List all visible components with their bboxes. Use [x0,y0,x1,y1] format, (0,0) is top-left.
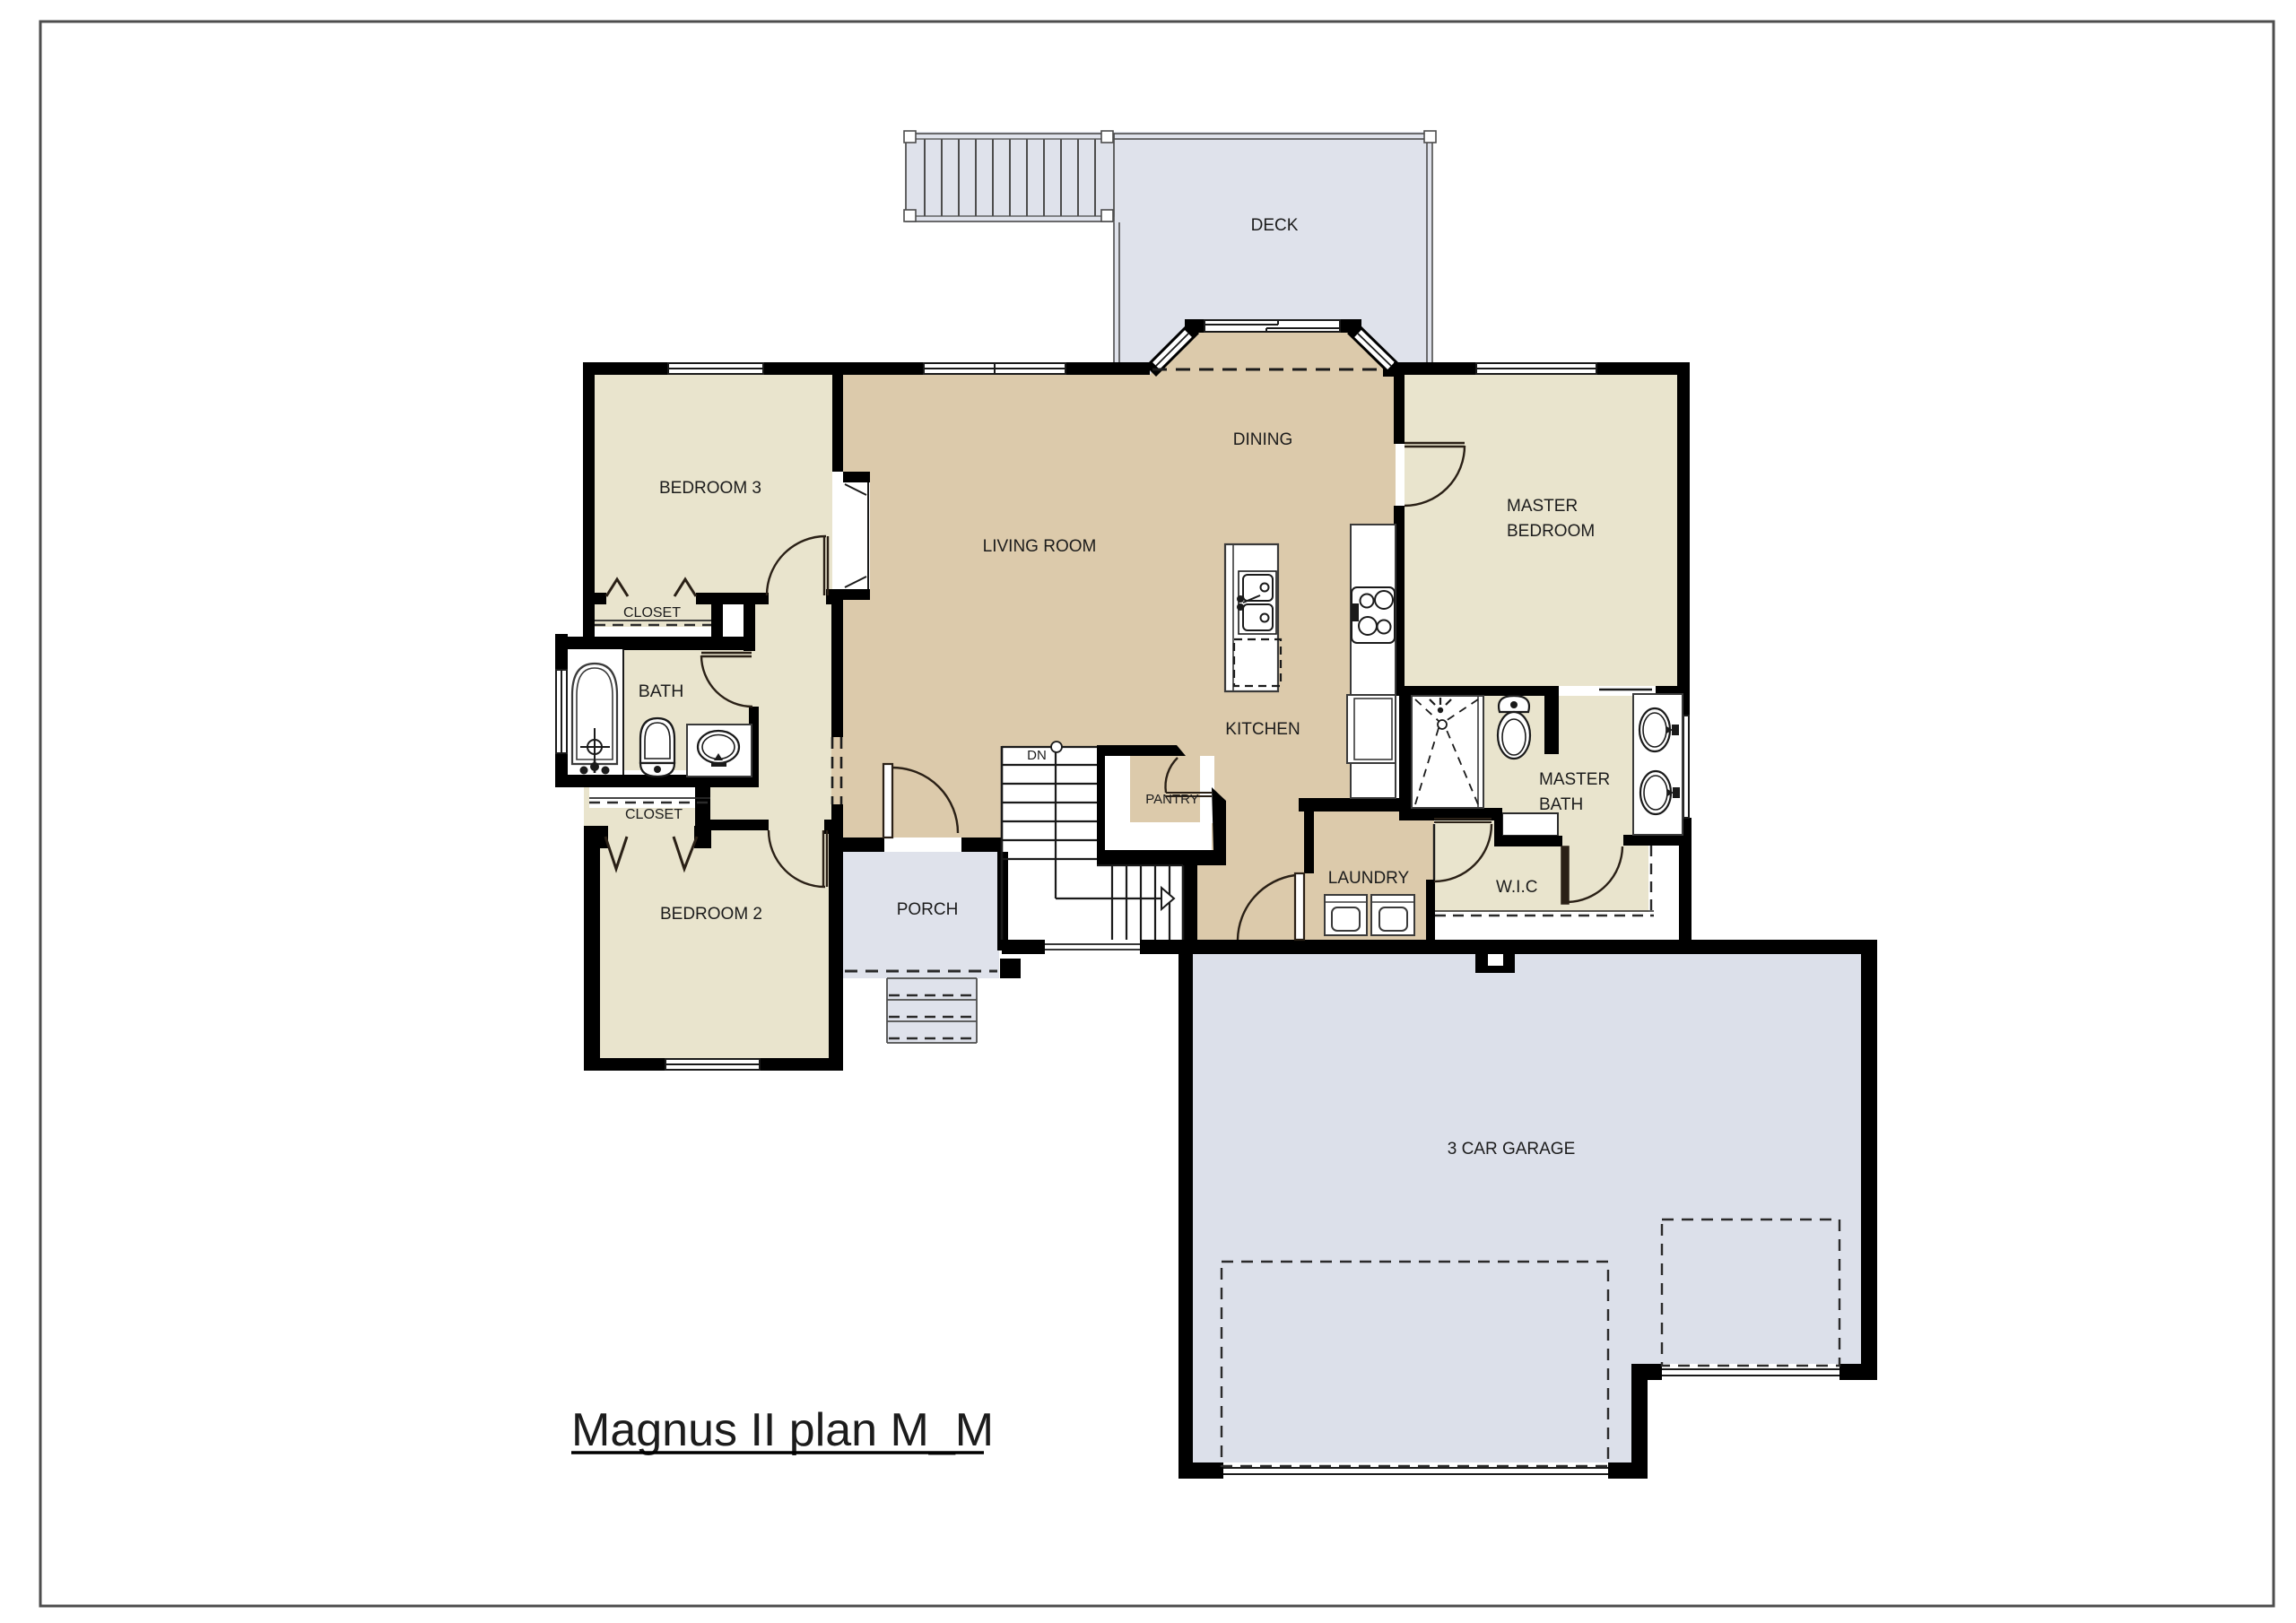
svg-text:BEDROOM 2: BEDROOM 2 [660,905,762,924]
svg-text:DN: DN [1027,748,1047,763]
svg-text:CLOSET: CLOSET [623,605,681,621]
svg-text:KITCHEN: KITCHEN [1225,720,1300,739]
svg-text:BEDROOM: BEDROOM [1507,522,1595,541]
svg-text:MASTER: MASTER [1539,770,1610,789]
svg-text:CLOSET: CLOSET [625,807,683,822]
svg-text:W.I.C: W.I.C [1496,878,1537,897]
svg-text:LAUNDRY: LAUNDRY [1328,869,1410,888]
svg-text:BATH: BATH [1539,795,1583,814]
svg-text:BATH: BATH [639,681,684,701]
svg-text:BEDROOM 3: BEDROOM 3 [659,479,761,498]
svg-text:PORCH: PORCH [897,900,959,919]
svg-text:Magnus II plan M_M: Magnus II plan M_M [571,1404,994,1456]
svg-text:3 CAR GARAGE: 3 CAR GARAGE [1448,1140,1576,1159]
svg-text:DECK: DECK [1251,216,1299,235]
svg-text:LIVING ROOM: LIVING ROOM [983,537,1097,556]
svg-text:MASTER: MASTER [1507,497,1578,516]
svg-text:PANTRY: PANTRY [1145,792,1198,807]
svg-text:DINING: DINING [1233,430,1293,449]
